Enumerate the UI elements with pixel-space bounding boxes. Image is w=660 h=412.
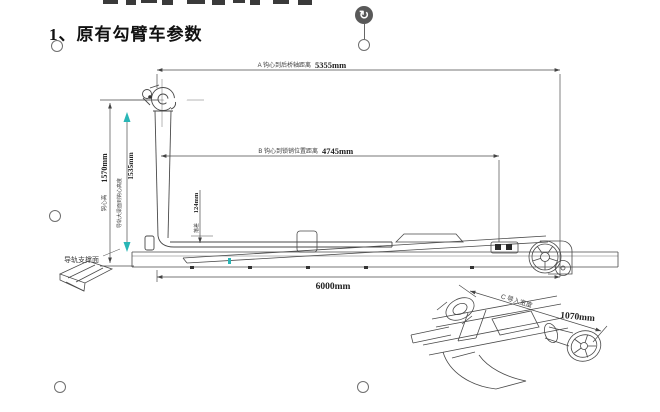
dim-b-label: B 钩心到锁销位置距离 xyxy=(258,147,318,155)
dim-length-value: 6000mm xyxy=(316,282,351,292)
dim-b-value: 4745mm xyxy=(322,146,353,156)
document-page: 1、原有勾臂车参数 A 钩心到后桥轴距离 5355mm B 钩心到锁销位置距离 … xyxy=(0,0,660,412)
dim-height-value: 1570mm xyxy=(100,153,109,183)
dim-rail-height-label: 导轨大梁面到钩心高度 xyxy=(116,178,123,228)
selection-handle-top-middle[interactable] xyxy=(358,39,370,51)
teal-arrow-up xyxy=(124,112,131,122)
rear-roller xyxy=(529,241,572,276)
dim-drop-label: 落差 xyxy=(193,223,200,233)
dimension-b xyxy=(161,156,499,242)
rotate-icon: ↻ xyxy=(359,9,369,21)
dimension-rail-height xyxy=(124,112,131,252)
rail-surface-leader xyxy=(103,249,120,256)
detail-view xyxy=(411,293,605,389)
dim-drop-value: 124mm xyxy=(193,192,200,213)
dim-a-value: 5355mm xyxy=(315,60,346,70)
teal-arrow-down xyxy=(124,242,131,252)
rail-bracket-sketch xyxy=(60,261,112,291)
selection-handle-middle-left[interactable] xyxy=(49,210,61,222)
selection-handle-top-left[interactable] xyxy=(51,40,63,52)
dim-c-value: 1070mm xyxy=(560,311,596,324)
rotation-handle[interactable]: ↻ xyxy=(355,6,373,24)
dimension-length xyxy=(157,270,560,282)
selection-handle-bottom-middle[interactable] xyxy=(357,381,369,393)
hook-assembly xyxy=(120,79,392,250)
dim-height-label: 钩心高 xyxy=(100,194,108,211)
hook-arm-truck-drawing[interactable]: A 钩心到后桥轴距离 5355mm B 钩心到锁销位置距离 4745mm 157… xyxy=(0,0,660,412)
rotation-handle-stem xyxy=(364,24,365,39)
dim-rail-height-value: 1535mm xyxy=(126,152,135,180)
selection-handle-bottom-left[interactable] xyxy=(54,381,66,393)
dim-a-label: A 钩心到后桥轴距离 xyxy=(258,61,311,69)
dim-c-label: C 导入宽度 xyxy=(500,292,534,310)
